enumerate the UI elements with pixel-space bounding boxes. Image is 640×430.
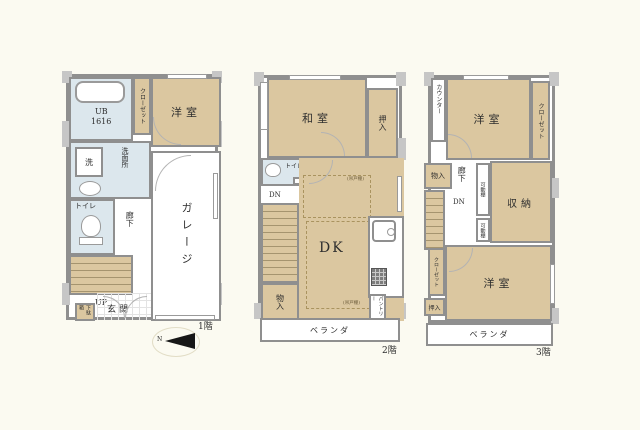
- faucet-icon: [387, 228, 395, 236]
- unit-bath-label: UB: [95, 107, 108, 116]
- unit-bath-size-label: 1616: [91, 117, 111, 126]
- room-closet-1f: クローゼット: [133, 77, 151, 135]
- window: [260, 82, 268, 130]
- dn-3f-label: DN: [453, 198, 465, 206]
- stove-icon: [371, 268, 387, 286]
- floor1-plan: UB 1616 クローゼット 洋室 洗 洗面所 トイレ 廊下 UP 下駄箱: [66, 74, 218, 320]
- washing-machine-icon: 洗: [75, 147, 103, 177]
- oshiire-2f-label: 押入: [377, 115, 388, 131]
- pillar: [551, 178, 559, 198]
- room-mononyu-2f: 物入: [261, 283, 299, 321]
- hallway-3f-label: 廊下: [457, 166, 466, 182]
- movable-shelf-1: 可動棚: [476, 163, 490, 216]
- movable-shelf-2: 可動棚: [476, 218, 490, 242]
- floorplan-image: UB 1616 クローゼット 洋室 洗 洗面所 トイレ 廊下 UP 下駄箱: [0, 0, 640, 430]
- yoshitsu-3f-top-label: 洋室: [474, 111, 504, 127]
- stairs-3f: [424, 190, 445, 250]
- room-closet-3f-top: クローゼット: [531, 81, 550, 160]
- pillar: [549, 72, 559, 86]
- veranda-3f: ベランダ: [426, 323, 553, 346]
- dn-2f-label: DN: [269, 191, 281, 199]
- toilet-icon: [265, 163, 281, 177]
- compass-n-label: N: [157, 337, 162, 344]
- closet-1f-label: クローゼット: [138, 88, 147, 124]
- room-oshiire-2f: 押入: [367, 88, 398, 158]
- toilet-icon: [81, 215, 101, 237]
- garage-door: [155, 315, 215, 320]
- overhead-cabinet-outline: [306, 221, 370, 309]
- room-oshiire-3f: 押入: [424, 298, 445, 316]
- compass-north-arrow: [165, 333, 195, 349]
- yoshitsu-3f-bottom-label: 洋室: [484, 275, 514, 291]
- closet-3f-top-label: クローゼット: [536, 103, 545, 139]
- room-shunou: 収納: [490, 161, 552, 243]
- shunou-label: 収納: [507, 195, 535, 210]
- room-closet-3f-bottom: クローゼット: [428, 248, 445, 296]
- pillar: [398, 138, 406, 160]
- floor3-plan: カウンター 洋室 クローゼット 物入 廊下 DN 可動棚 可動棚 収納: [428, 75, 555, 323]
- overhead-cabinet-label-bottom: (吊戸棚): [343, 301, 360, 306]
- bathtub-icon: [75, 81, 125, 103]
- mononyu-2f-label: 物入: [275, 294, 286, 310]
- window: [289, 75, 341, 80]
- sink-icon: [79, 181, 101, 196]
- floor3-caption: 3階: [536, 348, 551, 358]
- toilet-tank-icon: [79, 237, 103, 245]
- stairs-1f: [69, 255, 133, 295]
- stairs-2f: [261, 203, 299, 283]
- shoe-cabinet: 下駄箱: [75, 303, 95, 321]
- pantry-label: パントリー: [371, 296, 385, 319]
- overhead-cabinet-label-top: (吊戸棚): [347, 177, 364, 182]
- pillar: [551, 308, 559, 324]
- senmenjo-label: 洗面所: [121, 147, 129, 168]
- veranda-3f-label: ベランダ: [470, 329, 510, 340]
- counter-label: カウンター: [434, 84, 441, 114]
- window: [550, 264, 555, 304]
- floor2-plan: 和室 押入 トイレ DN 物入 (吊戸棚) (吊戸棚) DK: [258, 75, 402, 318]
- floor2-caption: 2階: [382, 346, 397, 356]
- movable-shelf-1-label: 可動棚: [480, 182, 487, 197]
- shoe-cabinet-label: 下駄箱: [78, 305, 92, 319]
- oshiire-3f-label: 押入: [428, 303, 440, 312]
- washitsu-label: 和室: [302, 110, 332, 126]
- dk-label: DK: [319, 240, 345, 256]
- mononyu-3f-label: 物入: [431, 171, 445, 181]
- veranda-2f: ベランダ: [260, 318, 400, 342]
- window: [213, 173, 218, 219]
- window: [463, 75, 509, 80]
- closet-3f-bottom-label: クローゼット: [433, 257, 440, 287]
- room-mononyu-3f: 物入: [424, 163, 452, 189]
- window: [397, 176, 402, 212]
- toilet-1f-label: トイレ: [75, 202, 96, 210]
- pillar: [396, 72, 406, 86]
- window: [167, 74, 207, 79]
- movable-shelf-2-label: 可動棚: [480, 223, 487, 238]
- veranda-2f-label: ベランダ: [310, 325, 350, 336]
- garage-label: ガレージ: [178, 202, 194, 270]
- hallway-1f-label: 廊下: [125, 211, 134, 227]
- washer-label: 洗: [85, 157, 93, 168]
- floor1-caption: 1階: [198, 322, 213, 332]
- room-washitsu: 和室: [267, 78, 367, 158]
- pantry-cabinet: パントリー: [369, 294, 386, 321]
